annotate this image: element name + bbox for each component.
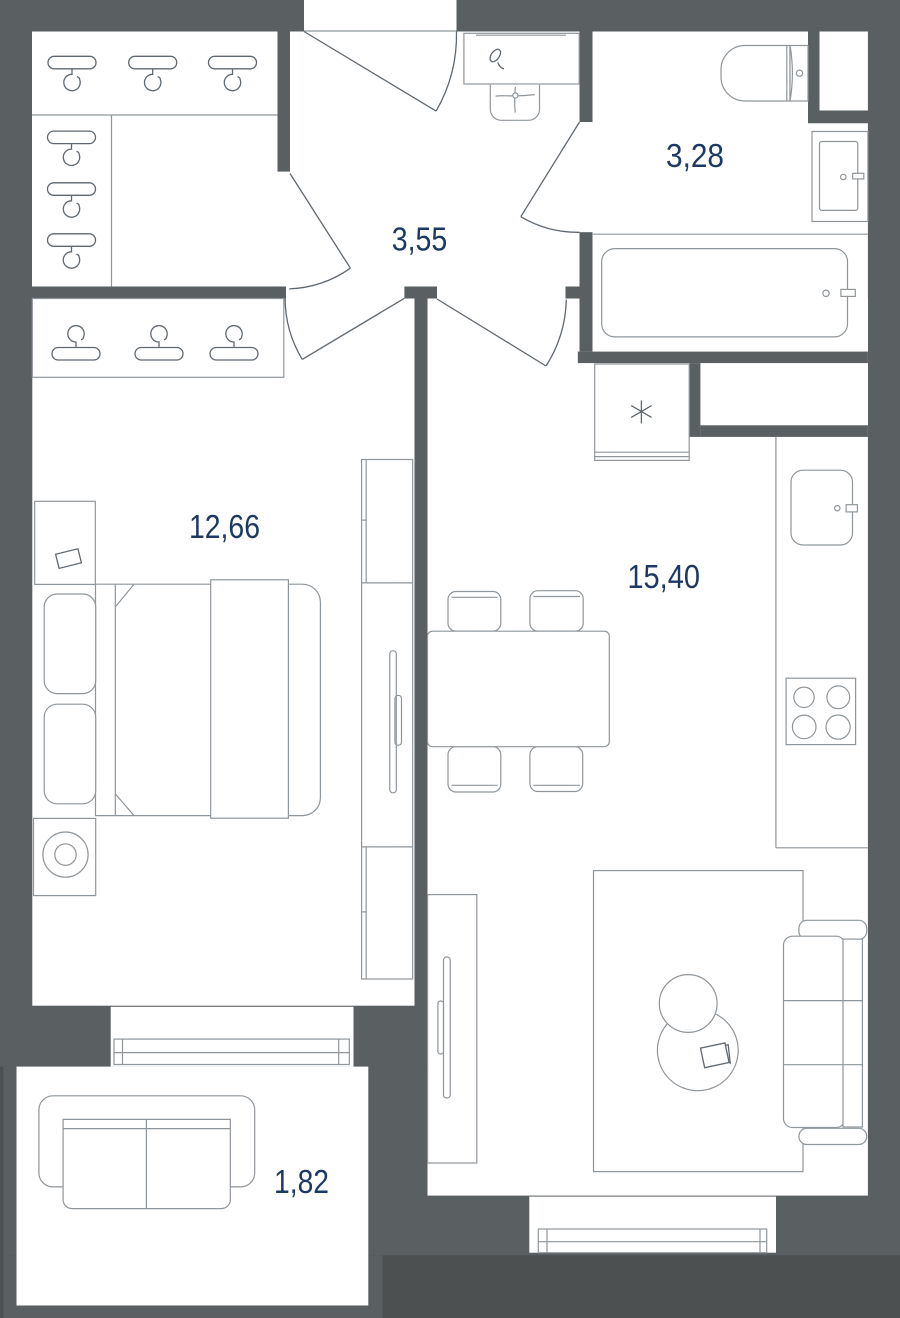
svg-text:1,82: 1,82 bbox=[274, 1163, 329, 1200]
svg-text:15,40: 15,40 bbox=[627, 558, 700, 595]
svg-text:3,55: 3,55 bbox=[392, 220, 448, 257]
svg-text:3,28: 3,28 bbox=[666, 137, 724, 174]
svg-text:12,66: 12,66 bbox=[189, 508, 260, 545]
